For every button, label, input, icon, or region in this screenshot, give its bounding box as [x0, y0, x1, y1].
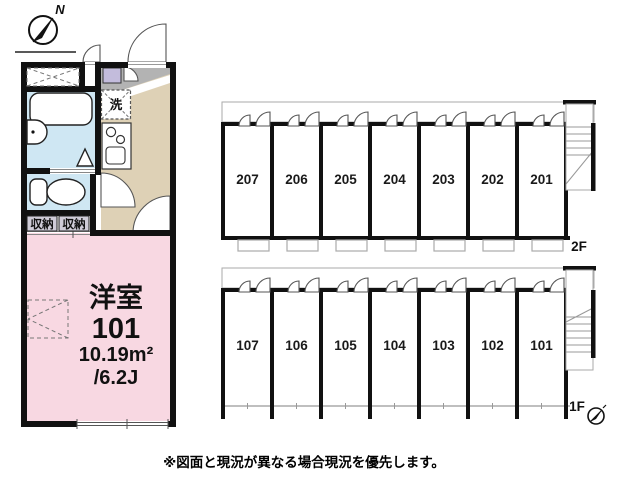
room-area-label: 10.19m²	[79, 344, 154, 366]
building-floor-1f: 107 106 105 104 103 102 101 1F	[221, 266, 606, 424]
room-203-label: 203	[432, 172, 455, 187]
room-205-label: 205	[334, 172, 357, 187]
floor-plan-page: N	[0, 0, 618, 481]
room-204-label: 204	[383, 172, 406, 187]
storage-label-left: 収納	[31, 217, 54, 231]
disclaimer-text: ※図面と現況が異なる場合現況を優先します。	[0, 451, 608, 471]
room-104-label: 104	[383, 338, 406, 353]
toilet-tank	[30, 179, 47, 205]
washing-machine-space: 洗	[102, 90, 131, 119]
staircase-1f	[566, 270, 596, 370]
room-101-label: 101	[530, 338, 553, 353]
storage-label-right: 収納	[63, 217, 86, 231]
room-window	[77, 421, 168, 427]
building-floor-2f: 207 206 205 204 203 202 201 2F	[221, 100, 596, 254]
floor-label-2f: 2F	[571, 239, 587, 254]
compass-north-label: N	[55, 2, 65, 17]
entrance-door-arc	[128, 24, 166, 62]
top-door-arc	[83, 45, 100, 62]
storage-boxes: 収納 収納	[27, 216, 89, 231]
building-layout: 207 206 205 204 203 202 201 2F	[215, 75, 618, 440]
unit-floor-plan: N	[0, 0, 210, 445]
staircase-2f	[566, 104, 596, 191]
floor-label-1f: 1F	[569, 399, 585, 414]
shoe-cabinet	[103, 68, 121, 83]
room-number-label: 101	[92, 313, 140, 345]
room-207-label: 207	[236, 172, 259, 187]
room-type-label: 洋室	[89, 283, 143, 313]
room-201-label: 201	[530, 172, 553, 187]
stove-burner	[117, 136, 125, 144]
laundry-label: 洗	[110, 97, 123, 112]
wash-basin	[27, 120, 47, 144]
room-106-label: 106	[285, 338, 308, 353]
room-202-label: 202	[481, 172, 504, 187]
compass-icon: N	[15, 2, 76, 52]
toilet-bowl	[47, 179, 85, 205]
room-tatami-label: /6.2J	[94, 367, 138, 389]
kitchen-counter	[102, 123, 131, 169]
room-107-label: 107	[236, 338, 259, 353]
kitchen-sink	[106, 147, 125, 164]
basin-drain	[31, 130, 34, 133]
stove-burner	[106, 127, 115, 136]
room-102-label: 102	[481, 338, 504, 353]
room-103-label: 103	[432, 338, 455, 353]
room-206-label: 206	[285, 172, 308, 187]
room-105-label: 105	[334, 338, 357, 353]
mini-compass-icon	[588, 405, 606, 424]
